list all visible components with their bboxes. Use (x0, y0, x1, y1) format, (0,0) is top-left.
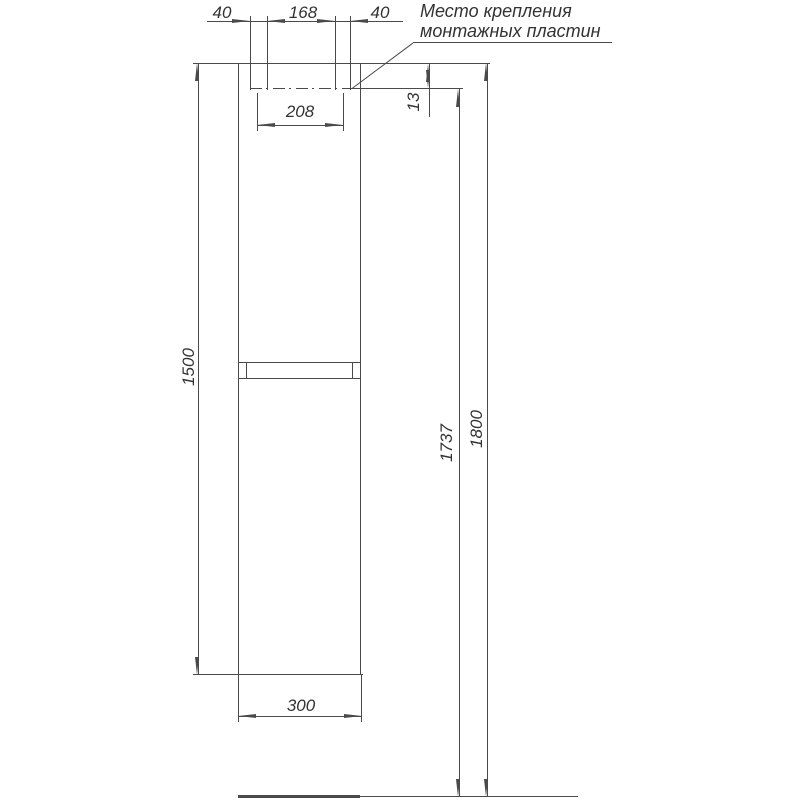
arrow-down-icon (456, 779, 460, 797)
extension-line (343, 93, 344, 131)
extension-line (335, 16, 336, 90)
dim-label-plate-left-width: 40 (192, 3, 252, 23)
cabinet-bottom-edge (193, 674, 363, 675)
leader-line-underline (413, 42, 612, 43)
mounting-plate-annotation: Место крепления монтажных пластин (420, 1, 601, 41)
dimension-line-1800 (487, 63, 488, 797)
floor-line-thin (360, 796, 578, 797)
shelf-band-top-line (238, 362, 361, 363)
arrow-left-icon (238, 714, 256, 718)
arrow-down-icon (484, 779, 488, 797)
arrow-up-icon (195, 63, 199, 81)
dim-label-cabinet-width: 300 (271, 696, 331, 716)
cabinet-right-edge (360, 63, 361, 675)
mounting-plate-centerline (250, 88, 352, 89)
shelf-band-right-line (352, 362, 353, 379)
arrow-left-icon (257, 123, 275, 127)
annotation-line-1: Место крепления (420, 1, 601, 21)
extension-line (350, 16, 351, 90)
dim-label-plates-gap: 168 (273, 3, 333, 23)
arrow-up-icon (456, 89, 460, 107)
extension-line (250, 16, 251, 90)
dim-label-total-height: 1800 (467, 394, 487, 464)
arrow-right-icon (325, 123, 343, 127)
dim-label-plate-top-offset: 13 (404, 82, 424, 122)
annotation-line-2: монтажных пластин (420, 21, 601, 41)
dim-label-plate-right-width: 40 (350, 3, 410, 23)
dim-label-mount-height: 1737 (437, 408, 457, 478)
arrow-right-icon (344, 714, 362, 718)
dimension-line-1737 (459, 89, 460, 797)
arrow-down-icon (426, 70, 430, 88)
floor-line-thick (238, 795, 360, 798)
dim-label-body-height: 1500 (179, 332, 199, 402)
technical-drawing-canvas: 40 168 40 208 13 1500 1737 1800 300 Мест… (0, 0, 800, 800)
arrow-up-icon (484, 63, 488, 81)
shelf-band-bottom-line (238, 378, 361, 379)
extension-line (267, 16, 268, 90)
arrow-down-icon (195, 657, 199, 675)
cabinet-left-edge (238, 63, 239, 675)
dim-label-plates-center-span: 208 (270, 102, 330, 122)
shelf-band-left-line (246, 362, 247, 379)
